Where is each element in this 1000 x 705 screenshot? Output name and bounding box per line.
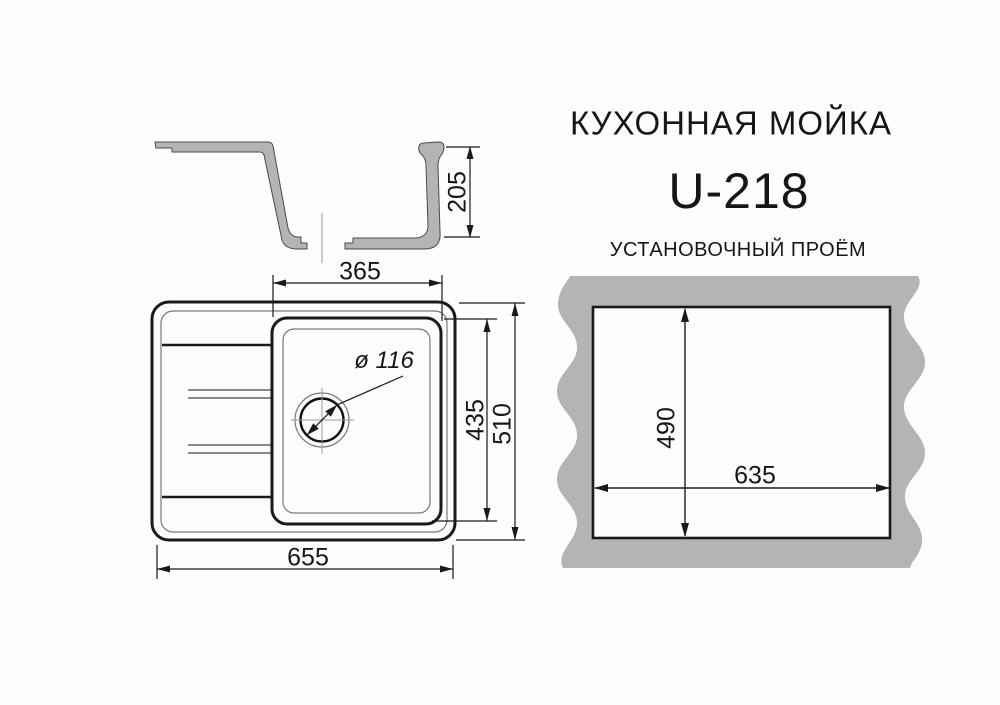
section-view [155, 142, 480, 263]
product-type-title: КУХОННАЯ МОЙКА [570, 107, 892, 140]
dim-490-label: 490 [655, 407, 680, 449]
dim-435-arrow-down [484, 508, 491, 521]
dim-205-arrow-down [467, 225, 474, 238]
cutout-view [557, 276, 925, 568]
cutout-opening [593, 307, 890, 538]
dim-365-label: 365 [339, 260, 381, 285]
dim-655-label: 655 [287, 546, 329, 571]
section-profile-right [345, 142, 444, 249]
dim-435-arrow-up [484, 319, 491, 332]
cutout-section-title: УСТАНОВОЧНЫЙ ПРОЁМ [610, 240, 866, 260]
dim-365-arrow-right [429, 280, 442, 287]
technical-drawing-sheet: КУХОННАЯ МОЙКА U-218 УСТАНОВОЧНЫЙ ПРОЁМ … [0, 0, 1000, 705]
dim-365-arrow-left [273, 280, 286, 287]
model-number: U-218 [668, 166, 809, 216]
dim-205-arrow-up [467, 146, 474, 159]
dim-655-arrow-right [440, 566, 453, 573]
dim-635-label: 635 [734, 464, 776, 489]
dim-510-arrow-down [512, 527, 519, 540]
dim-drain-diameter-label: ø 116 [354, 349, 414, 373]
dim-510-arrow-up [512, 303, 519, 316]
dim-510-label: 510 [491, 403, 516, 445]
dim-205-label: 205 [446, 171, 471, 213]
section-profile-left [155, 142, 307, 249]
dim-435-label: 435 [464, 399, 489, 441]
dim-655-arrow-left [157, 566, 170, 573]
